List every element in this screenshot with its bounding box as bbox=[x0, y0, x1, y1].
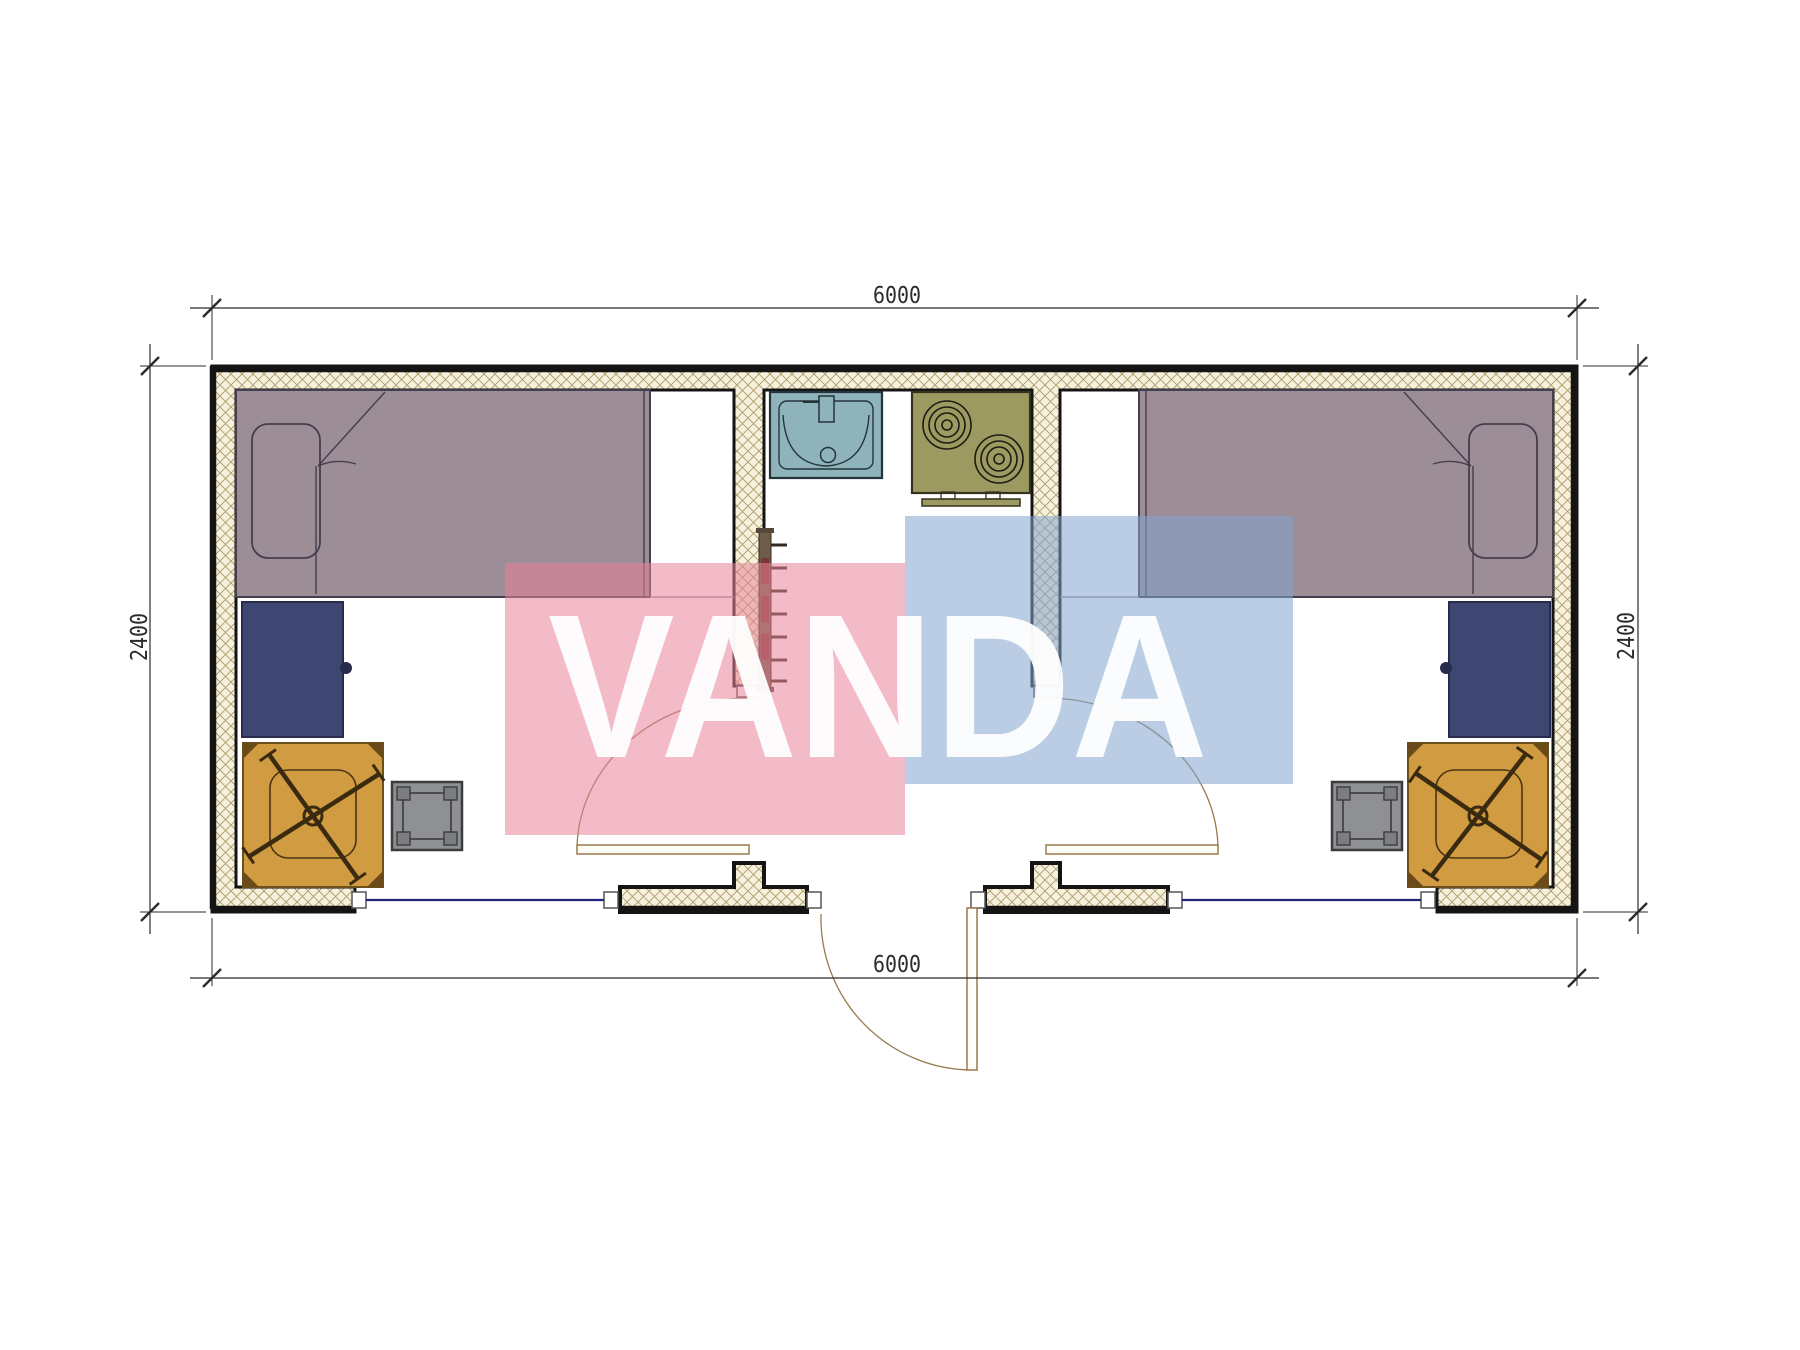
window-frame-icon bbox=[604, 892, 618, 908]
stool-icon bbox=[1332, 782, 1402, 850]
floor-plan-canvas: VANDA 6000 6000 2400 bbox=[0, 0, 1800, 1350]
entry-door-leaf-icon bbox=[967, 908, 977, 1070]
dim-top: 6000 bbox=[190, 283, 1599, 360]
entry-door-swing-arc bbox=[821, 914, 972, 1070]
watermark: VANDA bbox=[505, 516, 1293, 835]
dim-left: 2400 bbox=[127, 344, 206, 934]
pillow-icon bbox=[1469, 424, 1537, 558]
office-chair-icon bbox=[239, 743, 386, 887]
bottom-wall-right-T bbox=[985, 863, 1168, 912]
door-frame-icon bbox=[971, 892, 985, 908]
dim-right: 2400 bbox=[1583, 344, 1648, 934]
window-frame-icon bbox=[352, 892, 366, 908]
dim-label-right: 2400 bbox=[1614, 612, 1640, 660]
desk-icon bbox=[1449, 602, 1550, 737]
window-frame-icon bbox=[1168, 892, 1182, 908]
desk-knob-icon bbox=[1440, 662, 1452, 674]
desk-knob-icon bbox=[340, 662, 352, 674]
right-door-leaf-icon bbox=[1046, 845, 1218, 854]
door-frame-icon bbox=[807, 892, 821, 908]
dim-bottom: 6000 bbox=[190, 918, 1599, 987]
floor-plan-page: VANDA 6000 6000 2400 bbox=[0, 0, 1800, 1350]
dim-label-top: 6000 bbox=[873, 283, 921, 309]
left-door-leaf-icon bbox=[577, 845, 749, 854]
watermark-text: VANDA bbox=[548, 572, 1208, 801]
bottom-wall-left-T bbox=[620, 863, 807, 912]
stool-icon bbox=[392, 782, 462, 850]
office-chair-icon bbox=[1404, 743, 1551, 887]
sink-icon bbox=[770, 392, 882, 478]
window-frame-icon bbox=[1421, 892, 1435, 908]
pillow-icon bbox=[252, 424, 320, 558]
dim-label-left: 2400 bbox=[127, 613, 153, 661]
desk-icon bbox=[242, 602, 343, 737]
dim-label-bottom: 6000 bbox=[873, 952, 921, 978]
stove-icon bbox=[912, 392, 1030, 506]
